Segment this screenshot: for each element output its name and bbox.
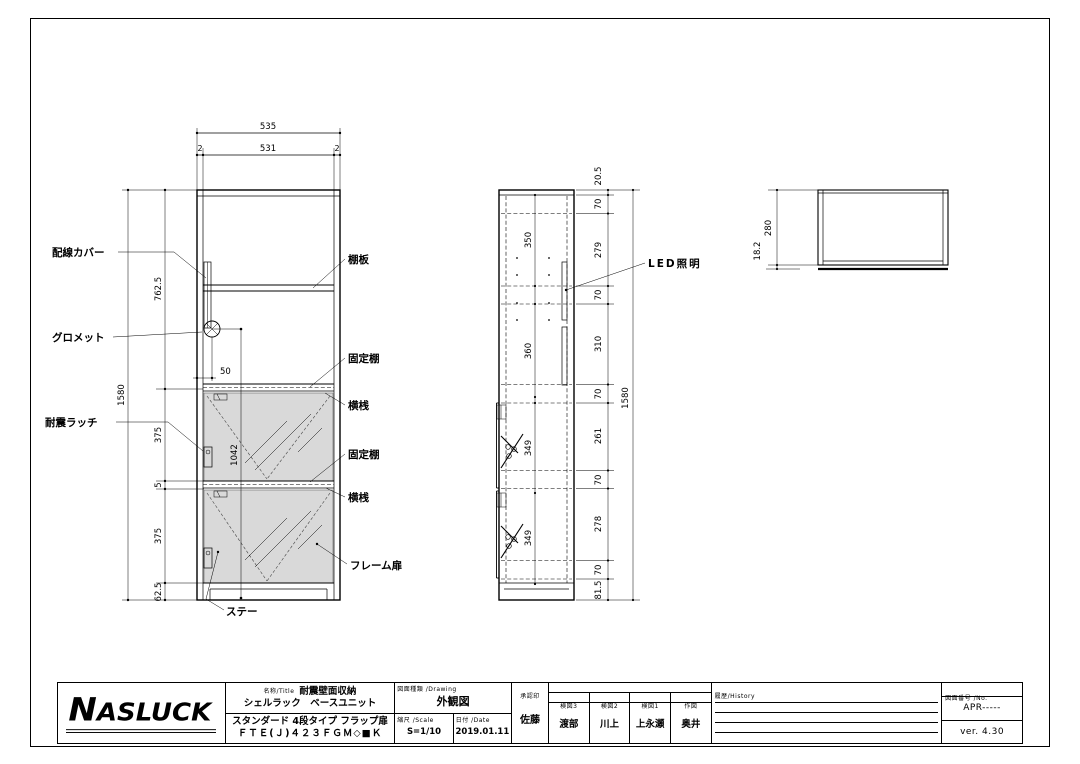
lower-flap-door <box>204 490 333 583</box>
sv-dim-outer-3: 70 <box>594 290 604 301</box>
label-fixed-shelf-1: 固定棚 <box>348 352 380 365</box>
fv-dim-wall-left: 2 <box>197 144 202 153</box>
fv-dim-total-width: 535 <box>260 122 276 132</box>
approval-cell: 承認印 佐藤 <box>512 683 549 743</box>
label-led-light: LED照明 <box>648 258 702 270</box>
sv-dim-outer-6: 261 <box>594 428 604 444</box>
sv-dim-outer-1: 70 <box>594 199 604 210</box>
scale-value: S=1/10 <box>407 727 441 737</box>
sv-dim-inner-3: 349 <box>524 530 534 546</box>
sv-dim-outer-5: 70 <box>594 389 604 400</box>
nasluck-logo: NASLUCK <box>66 694 216 733</box>
drawing-type-label: 図面種類 /Drawing <box>397 684 456 693</box>
title-block: NASLUCK 名称/Title 耐震壁面収納 シェルラック ベースユニット ス… <box>57 682 1023 744</box>
history-row <box>715 713 939 723</box>
stay-hardware-upper <box>501 434 523 468</box>
date-value: 2019.01.11 <box>455 727 509 737</box>
product-type: スタンダード 4段タイプ フラップ扉 <box>226 716 395 728</box>
drawing-type-cell: 図面種類 /Drawing 外観図 縮尺 /Scale S=1/10 日付 /D… <box>395 683 512 743</box>
label-grommet: グロメット <box>52 331 105 344</box>
door-edge-lower <box>497 491 507 578</box>
product-code: ＦＴＥ(Ｊ)４２３ＦＧＭ◇■Ｋ <box>226 728 395 740</box>
date-label: 日付 /Date <box>456 715 490 724</box>
fv-dim-base-height: 62.5 <box>154 583 164 602</box>
label-wiring-cover: 配線カバー <box>52 246 105 259</box>
fv-dim-gap: 5 <box>154 482 164 487</box>
sv-dim-outer-9: 70 <box>594 565 604 576</box>
check-column: 検図3 渡部 <box>549 693 590 743</box>
sv-dim-outer-4: 310 <box>594 336 604 352</box>
fv-dim-inner-width: 531 <box>260 144 276 154</box>
drawing-type-value: 外観図 <box>437 693 470 709</box>
led-strip-symbol <box>562 262 567 385</box>
fv-dim-door2-height: 375 <box>154 528 164 544</box>
fv-dim-door-span: 1042 <box>230 444 240 466</box>
product-category: 耐震壁面収納 <box>299 686 356 698</box>
fv-dim-door1-height: 375 <box>154 427 164 443</box>
sv-dim-outer-7: 70 <box>594 475 604 486</box>
product-series: シェルラック ベースユニット <box>226 698 395 710</box>
approver-name: 佐藤 <box>512 693 548 743</box>
sv-dim-outer-0: 20.5 <box>594 167 604 186</box>
label-rail-1: 横桟 <box>348 399 369 412</box>
check-section: 照合者 /Check up by ナスラック㈱ダンテの工場 検図3 渡部 検図2… <box>549 683 712 743</box>
label-fixed-shelf-2: 固定棚 <box>348 448 380 461</box>
fv-dim-wall-right: 2 <box>334 144 339 153</box>
scale-label: 縮尺 /Scale <box>397 715 434 724</box>
title-cell: 名称/Title 耐震壁面収納 シェルラック ベースユニット スタンダード 4段… <box>226 683 396 743</box>
door-edge-upper <box>497 403 507 488</box>
name-label: 名称/Title <box>264 688 295 696</box>
version-value: ver. 4.30 <box>942 720 1022 744</box>
drawing-number-value: APR----- <box>942 696 1022 720</box>
history-row <box>715 723 939 733</box>
upper-flap-door <box>204 393 333 481</box>
check-column: 検図1 上永瀬 <box>630 693 671 743</box>
sv-dim-inner-2: 349 <box>524 440 534 456</box>
history-row <box>715 703 939 713</box>
sv-dim-inner-0: 350 <box>524 232 534 248</box>
check-1-name: 上永瀬 <box>630 703 670 743</box>
history-section: 履歴/History <box>712 683 943 743</box>
fv-dim-upper-height: 762.5 <box>154 277 164 301</box>
top-view: 280 18.2 <box>753 189 948 270</box>
stay-hardware-lower <box>501 524 523 558</box>
label-stay: ステー <box>226 606 258 618</box>
check-column: 作図 奥井 <box>671 693 711 743</box>
side-view: 350 360 349 349 20. <box>497 167 702 602</box>
sv-dim-outer-2: 279 <box>594 242 604 258</box>
drawing-number-section: 図面番号 /No. APR----- ver. 4.30 <box>942 683 1022 743</box>
fv-dim-grommet-offset: 50 <box>220 367 231 377</box>
check-2-name: 川上 <box>590 703 630 743</box>
label-shelf: 棚板 <box>348 253 369 266</box>
wiring-cover-symbol <box>204 262 211 328</box>
label-rail-2: 横桟 <box>348 491 369 504</box>
sv-dim-outer-8: 278 <box>594 516 604 532</box>
fv-dim-total-height: 1580 <box>117 384 127 406</box>
label-latch: 耐震ラッチ <box>45 416 98 429</box>
check-column: 検図2 川上 <box>590 693 631 743</box>
label-frame-door: フレーム扉 <box>350 559 403 572</box>
sv-dim-inner-1: 360 <box>524 343 534 359</box>
draughtsman-name: 奥井 <box>671 703 711 743</box>
shelf-pin-holes <box>516 257 550 321</box>
history-row <box>715 693 939 703</box>
check-3-name: 渡部 <box>549 703 589 743</box>
tv-dim-back-panel: 18.2 <box>753 242 763 261</box>
drawing-sheet: 535 2 531 2 762.5 375 5 375 62.5 <box>0 0 1080 764</box>
sv-dim-total-height: 1580 <box>621 387 631 409</box>
tv-dim-depth: 280 <box>764 220 774 236</box>
front-view: 535 2 531 2 762.5 375 5 375 62.5 <box>45 122 403 618</box>
cad-drawing-canvas: 535 2 531 2 762.5 375 5 375 62.5 <box>0 0 1080 764</box>
sv-dim-outer-10: 81.5 <box>594 581 604 600</box>
logo-cell: NASLUCK <box>58 683 226 743</box>
